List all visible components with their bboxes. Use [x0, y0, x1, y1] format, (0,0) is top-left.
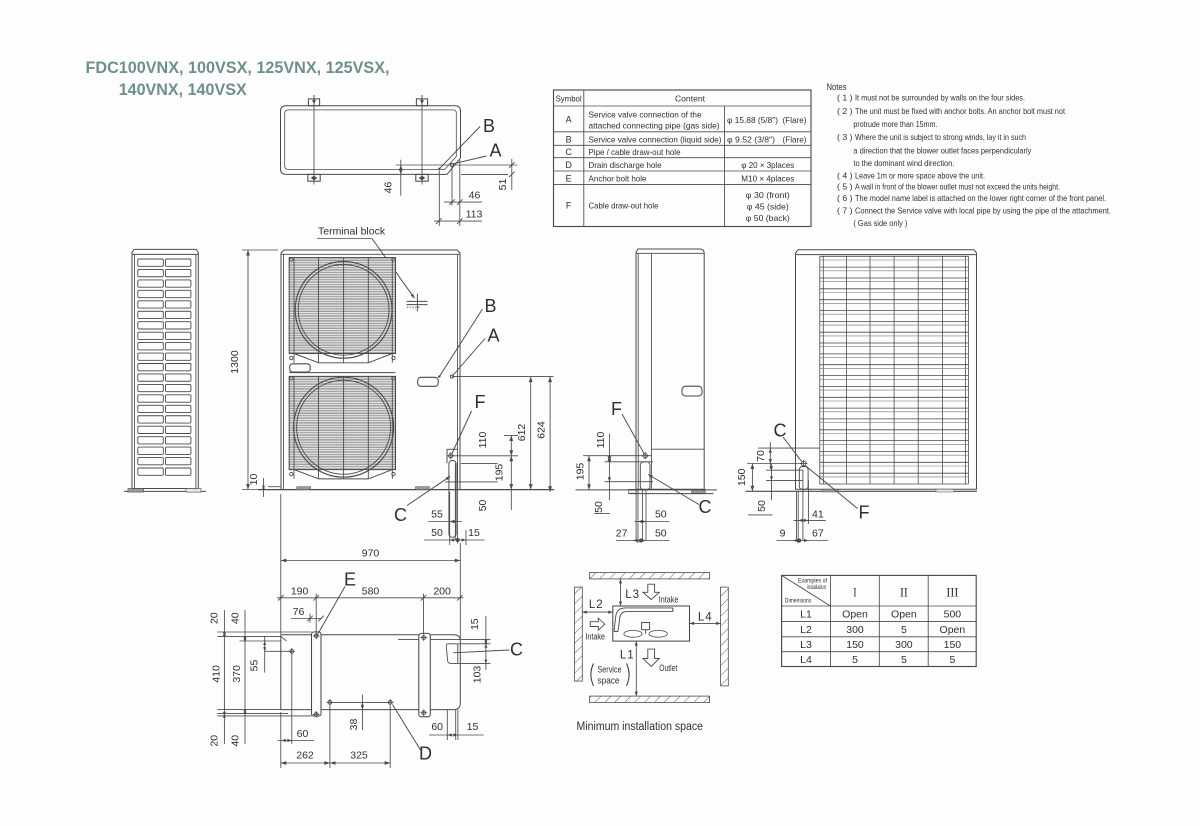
svg-text:Outlet: Outlet	[659, 663, 677, 673]
svg-text:φ 45 (side): φ 45 (side)	[747, 202, 789, 212]
svg-text:protrude more than 15mm.: protrude more than 15mm.	[853, 119, 937, 129]
svg-text:9: 9	[780, 527, 786, 539]
svg-text:612: 612	[516, 424, 528, 442]
svg-text:B: B	[483, 116, 495, 136]
svg-text:5: 5	[852, 654, 858, 666]
svg-text:L4: L4	[698, 611, 713, 623]
svg-text:46: 46	[469, 190, 481, 202]
svg-text:150: 150	[944, 639, 962, 651]
svg-text:I: I	[853, 585, 856, 600]
svg-text:103: 103	[472, 666, 484, 684]
svg-text:C: C	[510, 640, 523, 660]
svg-text:40: 40	[230, 612, 242, 624]
svg-text:φ 50 (back): φ 50 (back)	[746, 213, 790, 223]
svg-text:70: 70	[755, 450, 767, 462]
svg-text:B: B	[566, 134, 572, 144]
svg-text:The model name label is attach: The model name label is attached on the …	[855, 193, 1106, 203]
svg-text:L3: L3	[625, 589, 640, 601]
svg-text:Anchor bolt hole: Anchor bolt hole	[589, 174, 647, 184]
svg-text:Leave 1m or more space above t: Leave 1m or more space above the unit.	[855, 170, 985, 180]
svg-text:F: F	[611, 399, 622, 419]
svg-text:Service: Service	[598, 664, 622, 674]
svg-text:140VNX, 140VSX: 140VNX, 140VSX	[119, 81, 247, 99]
svg-text:M10 × 4places: M10 × 4places	[741, 174, 794, 184]
svg-text:E: E	[566, 174, 572, 184]
svg-text:Service valve connection (liqu: Service valve connection (liquid side)	[589, 134, 722, 144]
svg-text:F: F	[566, 201, 572, 211]
svg-text:φ 30 (front): φ 30 (front)	[746, 190, 790, 200]
svg-text:L4: L4	[800, 654, 812, 666]
svg-text:60: 60	[297, 728, 309, 740]
svg-text:Drain discharge hole: Drain discharge hole	[589, 160, 662, 170]
svg-text:( 3 ): ( 3 )	[837, 132, 853, 142]
svg-text:( 2 ): ( 2 )	[837, 106, 853, 116]
svg-text:Terminal block: Terminal block	[318, 226, 386, 238]
svg-text:Content: Content	[675, 94, 706, 104]
svg-text:(Flare): (Flare)	[783, 134, 807, 144]
svg-text:A: A	[488, 326, 500, 346]
svg-text:10: 10	[248, 474, 260, 486]
svg-text:F: F	[475, 392, 486, 412]
svg-text:200: 200	[433, 586, 451, 598]
svg-text:50: 50	[756, 500, 768, 512]
svg-text:B: B	[485, 296, 497, 316]
svg-text:50: 50	[431, 527, 443, 539]
svg-text:C: C	[565, 147, 572, 157]
svg-text:300: 300	[846, 624, 864, 636]
svg-text:(Flare): (Flare)	[783, 115, 807, 125]
svg-text:20: 20	[208, 735, 220, 747]
svg-text:500: 500	[944, 608, 962, 620]
svg-text:410: 410	[210, 665, 222, 683]
svg-text:27: 27	[616, 527, 628, 539]
svg-text:150: 150	[736, 468, 748, 486]
svg-text:L3: L3	[800, 639, 812, 651]
svg-text:76: 76	[293, 606, 305, 618]
svg-text:Pipe / cable draw-out hole: Pipe / cable draw-out hole	[589, 147, 681, 157]
svg-text:262: 262	[296, 750, 314, 762]
svg-text:C: C	[699, 497, 712, 517]
svg-text:190: 190	[291, 586, 309, 598]
svg-text:50: 50	[593, 501, 605, 513]
svg-text:( 4 ): ( 4 )	[837, 170, 853, 180]
svg-text:L1: L1	[620, 650, 635, 662]
svg-text:50: 50	[477, 500, 489, 512]
svg-text:5: 5	[901, 654, 907, 666]
svg-text:110: 110	[477, 431, 489, 448]
svg-text:15: 15	[469, 618, 481, 630]
svg-text:Intake: Intake	[585, 632, 605, 642]
svg-text:15: 15	[467, 721, 479, 733]
svg-text:F: F	[859, 503, 870, 523]
svg-text:Open: Open	[842, 608, 868, 620]
svg-text:38: 38	[348, 719, 360, 731]
svg-text:50: 50	[655, 509, 667, 521]
svg-text:D: D	[419, 744, 432, 764]
svg-text:5: 5	[901, 624, 907, 636]
svg-text:55: 55	[249, 660, 261, 672]
svg-text:L2: L2	[589, 599, 604, 611]
svg-text:A wall in front of the blower: A wall in front of the blower outlet mus…	[855, 182, 1060, 192]
svg-text:installation: installation	[807, 584, 826, 591]
svg-text:C: C	[774, 421, 787, 441]
svg-text:60: 60	[431, 721, 443, 733]
svg-text:Connect the Service valve with: Connect the Service valve with local pip…	[855, 205, 1111, 215]
svg-text:L1: L1	[800, 608, 812, 620]
svg-text:A: A	[566, 115, 572, 125]
svg-text:C: C	[394, 505, 407, 525]
svg-text:50: 50	[655, 527, 667, 539]
svg-text:Where the unit is subject to s: Where the unit is subject to strong wind…	[855, 132, 1026, 142]
svg-text:to the dominant wind direction: to the dominant wind direction.	[853, 158, 954, 168]
svg-text:attached connecting pipe (gas: attached connecting pipe (gas side)	[589, 121, 720, 131]
svg-text:5: 5	[949, 654, 955, 666]
svg-text:( Gas side only ): ( Gas side only )	[853, 218, 907, 228]
svg-text:( 7 ): ( 7 )	[837, 205, 853, 215]
svg-text:D: D	[565, 160, 572, 170]
svg-text:195: 195	[494, 464, 506, 482]
svg-text:325: 325	[350, 750, 368, 762]
svg-text:300: 300	[895, 639, 913, 651]
svg-text:( 5 ): ( 5 )	[837, 182, 853, 192]
svg-text:( 1 ): ( 1 )	[837, 92, 853, 102]
svg-text:110: 110	[595, 431, 607, 448]
svg-text:FDC100VNX, 100VSX, 125VNX, 125: FDC100VNX, 100VSX, 125VNX, 125VSX,	[86, 59, 390, 77]
svg-text:φ 9.52 (3/8″): φ 9.52 (3/8″)	[727, 134, 775, 144]
svg-text:φ 20 × 3places: φ 20 × 3places	[741, 160, 794, 170]
svg-text:970: 970	[362, 548, 380, 560]
svg-text:a direction that the blower ou: a direction that the blower outlet faces…	[853, 145, 1032, 155]
svg-text:E: E	[344, 570, 356, 590]
svg-text:Notes: Notes	[827, 82, 847, 92]
svg-text:space: space	[598, 675, 620, 685]
svg-text:624: 624	[536, 421, 548, 439]
svg-text:1300: 1300	[229, 350, 241, 374]
svg-text:φ 15.88 (5/8″): φ 15.88 (5/8″)	[727, 115, 778, 125]
svg-text:195: 195	[575, 463, 587, 481]
svg-text:Cable draw-out hole: Cable draw-out hole	[589, 201, 659, 211]
svg-text:370: 370	[231, 665, 243, 683]
svg-text:Service valve connection of th: Service valve connection of the	[589, 110, 702, 120]
svg-text:46: 46	[383, 182, 395, 194]
svg-text:Dimensions: Dimensions	[785, 598, 812, 605]
svg-text:150: 150	[846, 639, 864, 651]
svg-text:40: 40	[230, 735, 242, 747]
svg-text:L2: L2	[800, 624, 812, 636]
svg-text:( 6 ): ( 6 )	[837, 193, 853, 203]
svg-text:41: 41	[812, 509, 824, 521]
svg-text:20: 20	[208, 612, 220, 624]
svg-text:Intake: Intake	[659, 595, 679, 605]
svg-text:Minimum installation space: Minimum installation space	[577, 721, 704, 733]
svg-text:III: III	[946, 585, 958, 600]
svg-text:55: 55	[431, 509, 443, 521]
svg-text:II: II	[900, 585, 908, 600]
svg-text:Open: Open	[891, 608, 917, 620]
svg-text:It must not be surrounded by w: It must not be surrounded by walls on th…	[855, 92, 1025, 102]
svg-text:A: A	[490, 141, 502, 161]
svg-text:580: 580	[362, 586, 380, 598]
svg-text:The unit must be fixed with an: The unit must be fixed with anchor bolts…	[855, 106, 1066, 116]
svg-text:Symbol: Symbol	[556, 94, 582, 104]
svg-text:67: 67	[812, 527, 824, 539]
svg-text:15: 15	[468, 527, 480, 539]
svg-text:51: 51	[497, 179, 509, 191]
svg-text:Open: Open	[940, 624, 966, 636]
svg-text:113: 113	[466, 208, 483, 220]
